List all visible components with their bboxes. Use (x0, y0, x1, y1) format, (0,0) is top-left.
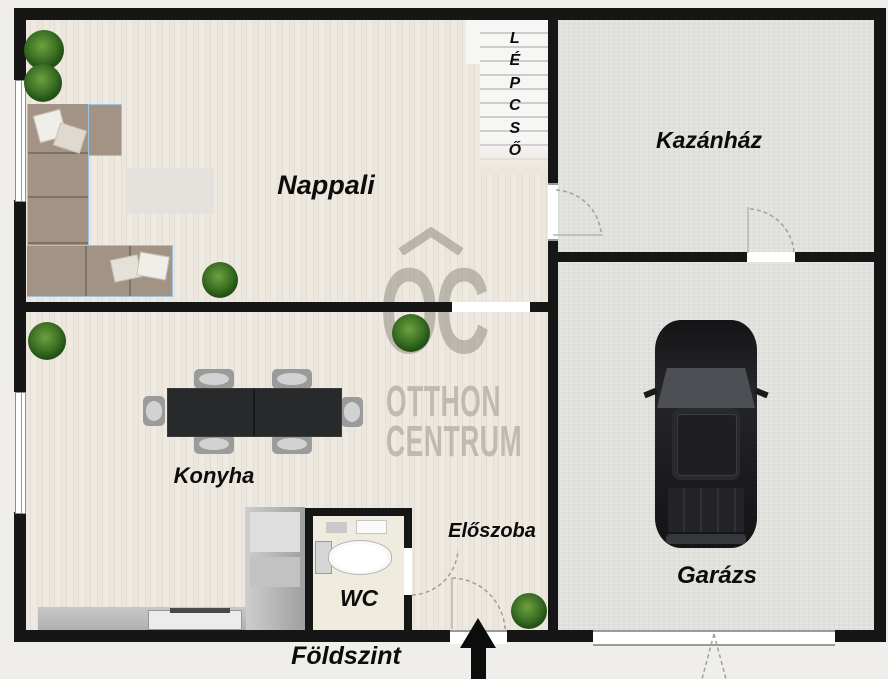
kazanhaz-door-opening (548, 183, 558, 241)
dining-chair (194, 369, 234, 389)
car-windshield (657, 368, 755, 408)
room-label-lepcso: LÉPCSŐ (506, 28, 524, 162)
dining-chair (272, 434, 312, 454)
kitchen-counter-bottom (38, 607, 246, 630)
wall-left-2 (14, 200, 26, 392)
entrance-arrow-shaft (471, 646, 486, 679)
garazs-door-opening (747, 252, 795, 262)
plant (511, 593, 547, 629)
cooktop (170, 608, 230, 613)
wall-wc-left (305, 508, 313, 630)
dining-chair (143, 396, 165, 426)
car (653, 312, 759, 554)
floorplan-canvas: OC OTTHON CENTRUM (0, 0, 888, 679)
dining-chair (194, 434, 234, 454)
wall-wc-right-lower (404, 595, 412, 630)
room-label-eloszoba: Előszoba (448, 520, 536, 543)
sofa-pillow (136, 252, 170, 281)
kitchen-sink (148, 610, 242, 630)
wall-right (874, 8, 886, 642)
window-konyha (15, 392, 26, 514)
room-label-wc: WC (340, 585, 378, 612)
plant (28, 322, 66, 360)
dining-chair (341, 397, 363, 427)
dining-table (167, 388, 342, 437)
logo-line2: CENTRUM (386, 420, 522, 464)
plant (392, 314, 430, 352)
wc-sink (356, 520, 387, 534)
car-rear-window (666, 534, 746, 544)
wall-bottom-3 (835, 630, 886, 642)
window-nappali (15, 80, 26, 202)
wall-bottom-1 (14, 630, 450, 642)
room-label-garazs: Garázs (677, 562, 757, 590)
kitchen-counter-vertical (245, 507, 305, 630)
car-roof (672, 408, 740, 480)
wall-wc-top (305, 508, 412, 516)
wall-wc-right-upper (404, 508, 412, 548)
wc-door-opening (404, 548, 412, 595)
plant (202, 262, 238, 298)
staircase-landing (466, 20, 480, 64)
rug (126, 168, 214, 214)
car-trunk (668, 488, 744, 532)
room-label-konyha: Konyha (174, 463, 255, 489)
entrance-arrow-icon (460, 618, 496, 648)
garage-door-opening (593, 630, 835, 646)
plan-title: Földszint (291, 642, 401, 671)
wall-top (14, 8, 886, 20)
wall-center-vertical-upper (548, 20, 558, 183)
wc-shelf (326, 522, 347, 533)
wall-divider-left (14, 302, 452, 312)
wall-center-vertical-lower (548, 237, 558, 642)
plant (24, 64, 62, 102)
wall-divider-right (530, 302, 548, 312)
wall-kazanhaz-garazs-right (795, 252, 874, 262)
divider-passage-opening (452, 302, 530, 312)
wall-left-3 (14, 512, 26, 642)
wall-kazanhaz-garazs-left (558, 252, 747, 262)
room-label-nappali: Nappali (277, 170, 375, 201)
dining-chair (272, 369, 312, 389)
toilet-bowl (328, 540, 392, 575)
room-label-kazanhaz: Kazánház (656, 127, 762, 154)
